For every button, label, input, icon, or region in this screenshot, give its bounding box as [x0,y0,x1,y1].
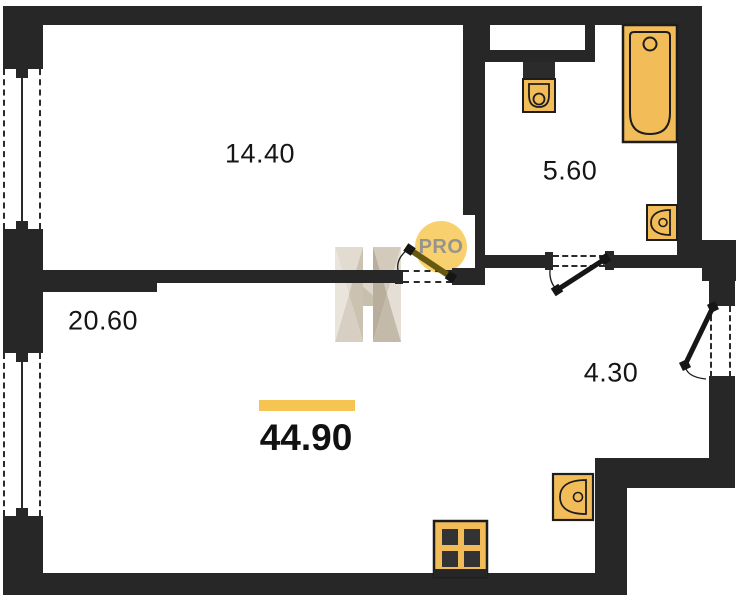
stove-icon [434,521,487,577]
bathroom-sink-icon [647,205,677,240]
bathtub-icon [623,25,677,142]
room-area-label-hallway: 4.30 [584,358,639,389]
fixtures-layer [0,0,736,600]
toilet-icon [523,62,555,112]
total-area-label: 44.90 [260,417,353,459]
floor-plan: PRO [0,0,736,600]
kitchen-sink-icon [553,474,593,520]
room-area-label-kitchen: 20.60 [68,306,138,337]
total-area-accent-bar [259,400,355,411]
entrance-door-icon [679,301,719,379]
room-door-icon [398,243,458,283]
bathroom-door-icon [550,253,611,296]
room-area-label-bathroom: 5.60 [543,156,598,187]
room-area-label-living: 14.40 [225,139,295,170]
